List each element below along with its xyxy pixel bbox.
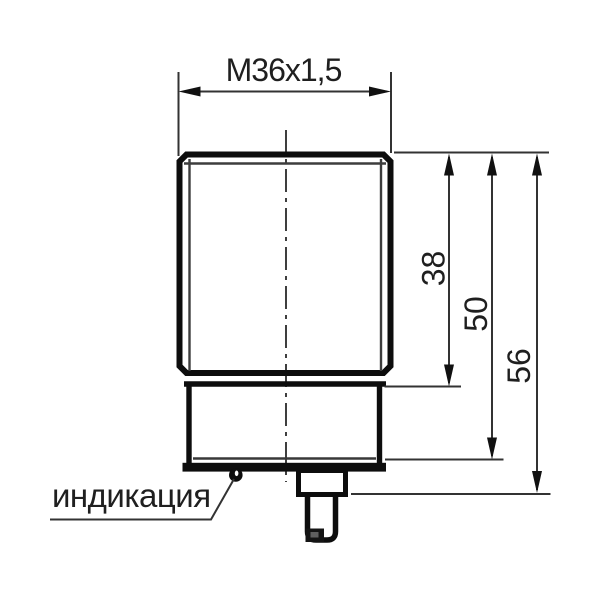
svg-text:50: 50 [458, 296, 494, 332]
svg-text:38: 38 [416, 251, 452, 287]
svg-text:индикация: индикация [52, 477, 211, 514]
svg-text:56: 56 [501, 348, 537, 384]
svg-text:М36х1,5: М36х1,5 [226, 52, 342, 88]
